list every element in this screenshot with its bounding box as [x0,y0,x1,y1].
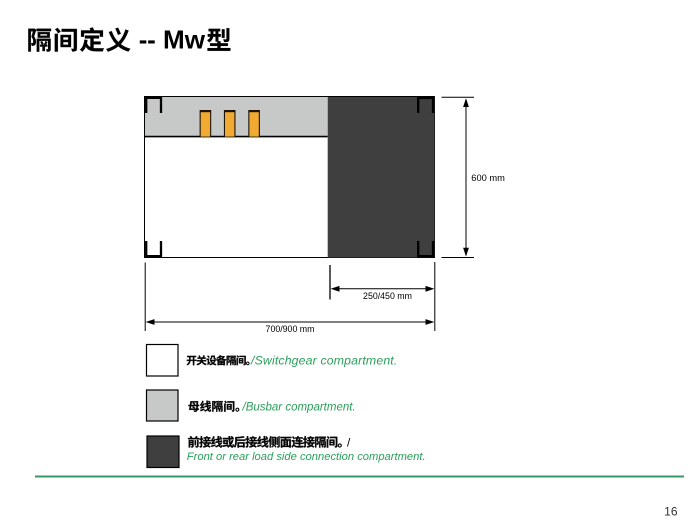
svg-text:16: 16 [664,505,678,519]
svg-text:Front or rear load side connec: Front or rear load side connection compa… [187,451,426,463]
svg-text:250/450 mm: 250/450 mm [363,291,412,301]
svg-text:/Switchgear compartment.: /Switchgear compartment. [250,353,397,367]
svg-text:-: - [139,25,148,55]
svg-text:600 mm: 600 mm [471,173,505,183]
svg-text:-: - [147,25,156,55]
svg-text:Mw: Mw [163,25,206,55]
svg-text:/Busbar compartment.: /Busbar compartment. [242,402,356,414]
svg-text:700/900 mm: 700/900 mm [266,324,315,334]
